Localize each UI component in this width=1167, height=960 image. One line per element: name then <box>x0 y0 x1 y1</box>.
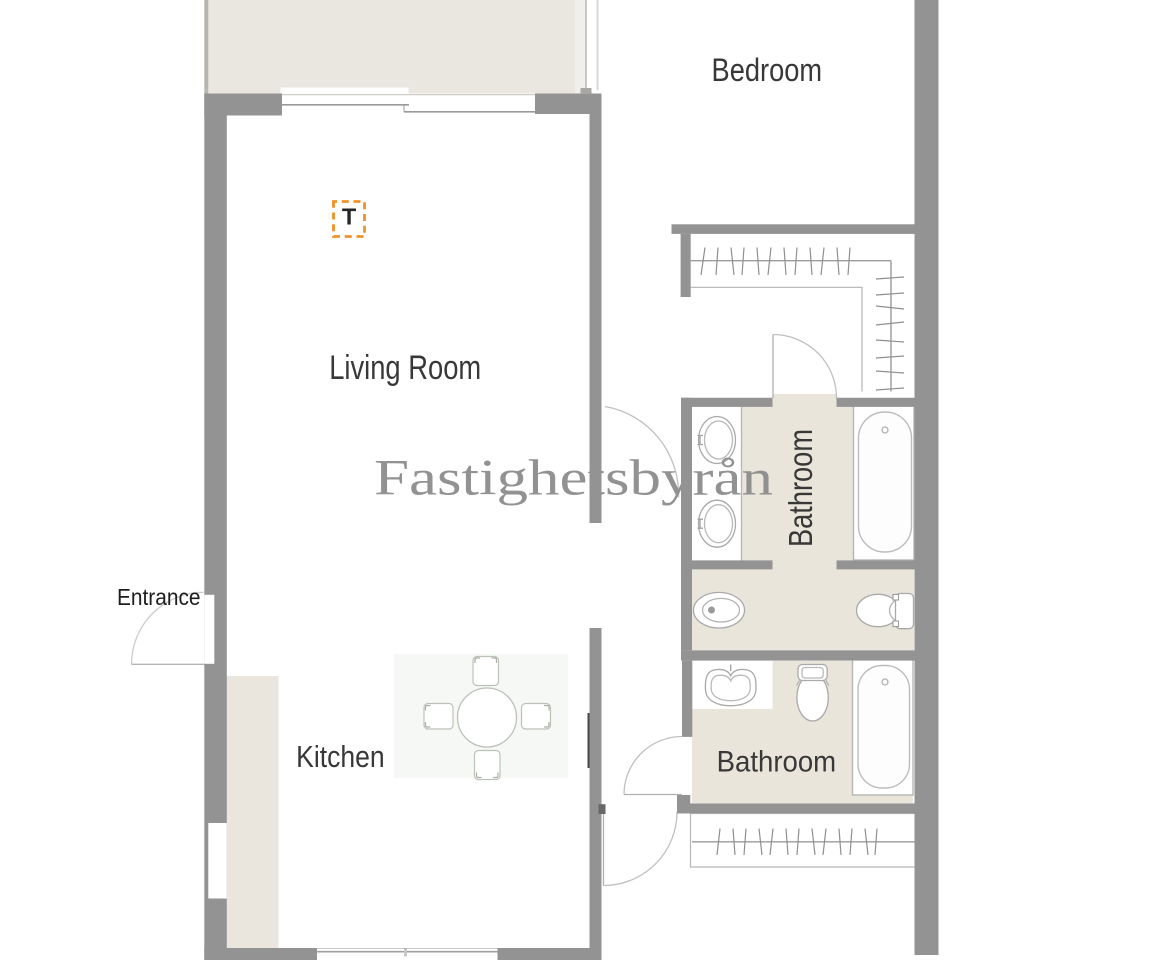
svg-text:T: T <box>342 204 357 230</box>
svg-text:Bathroom: Bathroom <box>717 745 837 778</box>
svg-text:Kitchen: Kitchen <box>296 740 385 774</box>
svg-text:Bedroom: Bedroom <box>712 52 823 88</box>
svg-text:Fastighetsbyrån: Fastighetsbyrån <box>374 451 773 507</box>
svg-text:Bathroom: Bathroom <box>783 429 820 547</box>
svg-text:Living Room: Living Room <box>329 349 481 387</box>
svg-text:Entrance: Entrance <box>117 584 201 610</box>
